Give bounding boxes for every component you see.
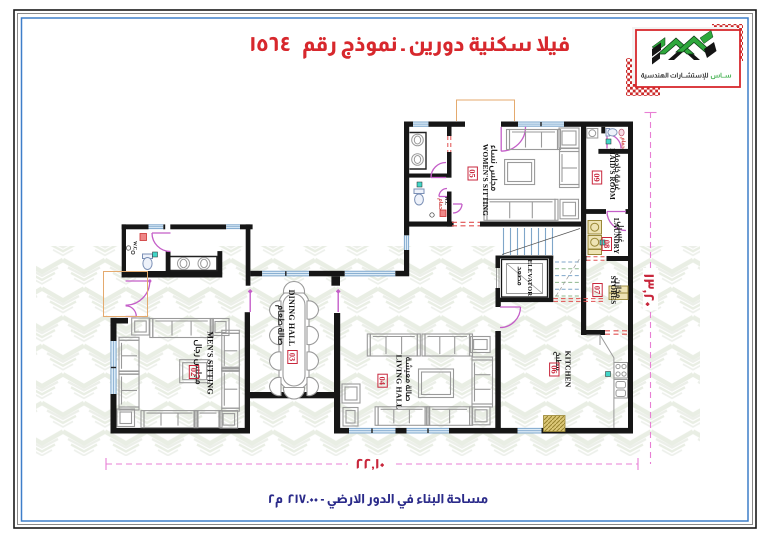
- svg-text:WOMEN'S SITTING: WOMEN'S SITTING: [481, 144, 490, 216]
- svg-text:02: 02: [189, 368, 199, 377]
- svg-text:06: 06: [549, 365, 559, 374]
- svg-text:STORES: STORES: [609, 276, 617, 305]
- svg-text:07: 07: [593, 286, 603, 295]
- svg-text:LIVING HALL: LIVING HALL: [395, 355, 404, 410]
- svg-text:MAID'S ROOM: MAID'S ROOM: [608, 148, 616, 200]
- svg-text:ELEVATOR: ELEVATOR: [526, 260, 533, 297]
- svg-text:KITCHEN: KITCHEN: [564, 351, 573, 388]
- svg-text:DINING HALL: DINING HALL: [287, 290, 296, 347]
- svg-text:03: 03: [288, 353, 298, 362]
- svg-text:08: 08: [602, 240, 612, 249]
- svg-text:W.C: W.C: [132, 241, 137, 251]
- svg-text:MEN'S SITTING: MEN'S SITTING: [206, 331, 215, 394]
- svg-text:09: 09: [592, 173, 602, 182]
- svg-text:05: 05: [468, 169, 478, 178]
- svg-text:W.C: W.C: [443, 196, 448, 206]
- svg-text:04: 04: [378, 376, 388, 385]
